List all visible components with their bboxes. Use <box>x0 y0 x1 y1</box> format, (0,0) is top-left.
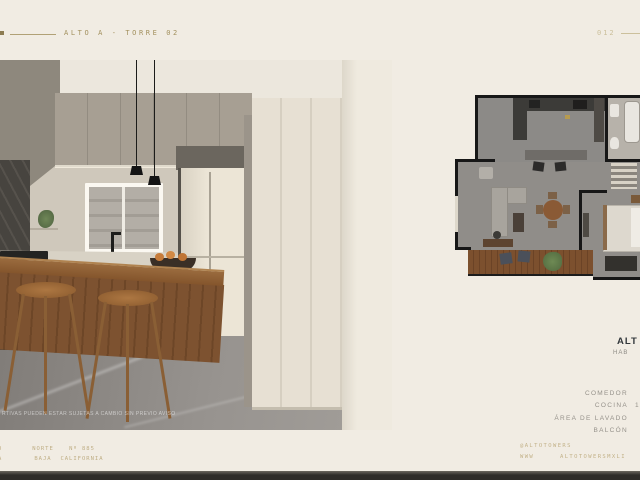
tall-wardrobe <box>252 98 342 410</box>
room-item: ÁREA DE LAVADO <box>520 413 628 425</box>
right-wall <box>342 60 392 430</box>
wall-mid-left <box>478 159 495 162</box>
cabinet-niche <box>176 146 244 170</box>
bed-footboard <box>603 205 607 250</box>
faucet-spout <box>111 232 121 235</box>
wall-bath-divider <box>605 98 608 159</box>
coffee-table <box>513 213 524 232</box>
wall-bedroom-top <box>579 190 607 193</box>
plan-subtitle: HAB <box>613 350 640 356</box>
pendant-cord <box>154 60 155 178</box>
balcony-chair <box>499 252 512 265</box>
desk-chair <box>493 231 501 239</box>
peninsula-stool <box>532 161 544 171</box>
balcony-deck <box>468 250 593 275</box>
brochure-page: ALTO A - TORRE 02 012 <box>0 0 640 480</box>
fruit <box>178 253 187 261</box>
fruit <box>155 253 164 261</box>
wall-notch <box>455 159 478 162</box>
wall-left-upper <box>475 95 478 162</box>
pendant-light-icon <box>148 176 161 185</box>
social-handle: @ALTOTOWERS <box>520 443 572 449</box>
counter-decor <box>565 115 570 119</box>
floor-plan <box>455 95 640 295</box>
peninsula-stool <box>555 161 567 171</box>
kitchen-render-photo: RTIVAS PUEDEN ESTAR SUJETAS A CAMBIO SIN… <box>0 60 392 430</box>
project-label: ALTO A - TORRE 02 <box>64 29 180 37</box>
stool-leg <box>44 296 47 414</box>
tall-unit <box>594 98 604 142</box>
nightstand <box>631 195 640 203</box>
sink <box>529 100 540 108</box>
header-edge-mark <box>0 31 4 35</box>
stool-leg <box>126 304 129 422</box>
bar-stool <box>14 282 80 430</box>
bottom-edge-bar <box>0 471 640 480</box>
wall-bottom-left <box>455 247 471 250</box>
balcony-plant-icon <box>543 252 562 271</box>
address-line: BAJA <box>27 454 59 464</box>
page-number: 012 <box>597 29 616 37</box>
balcony-chair <box>517 250 530 262</box>
sofa-chaise <box>491 187 508 237</box>
website-www: WWW <box>520 454 534 460</box>
page-number-rule <box>621 33 640 34</box>
bed-pillows <box>631 208 640 247</box>
wall-bedroom-divider <box>579 190 582 250</box>
bath-sink <box>610 104 619 117</box>
dining-chair <box>563 205 570 214</box>
dining-chair <box>548 192 557 199</box>
room-item: BALCÓN <box>520 425 628 437</box>
pendant-cord <box>136 60 137 168</box>
wall-bedroom-bottom <box>593 277 640 280</box>
toilet <box>610 137 619 149</box>
kitchen-peninsula <box>525 150 587 160</box>
address-block: Nº 885 CALIFORNIA <box>58 444 106 464</box>
balcony-rail <box>468 274 593 276</box>
address-block: DO NA <box>0 444 12 464</box>
dining-chair <box>536 205 543 214</box>
room-count: 1 <box>635 400 639 412</box>
address-block: NORTE BAJA <box>27 444 59 464</box>
bathtub <box>624 101 640 143</box>
address-line: NORTE <box>27 444 59 454</box>
room-item: COCINA <box>520 400 628 412</box>
wall-mid-right <box>605 159 640 162</box>
address-line: NA <box>0 454 12 464</box>
room-item: COMEDOR <box>520 388 628 400</box>
dining-chair <box>548 221 557 228</box>
armchair <box>479 167 493 179</box>
dining-table <box>543 200 563 220</box>
photo-disclaimer: RTIVAS PUEDEN ESTAR SUJETAS A CAMBIO SIN… <box>2 411 222 417</box>
fruit <box>166 251 175 259</box>
website-domain: ALTOTOWERSMXLI <box>560 454 640 460</box>
header-rule-line <box>10 34 56 35</box>
open-shelf <box>30 228 58 230</box>
address-line: DO <box>0 444 12 454</box>
faucet-icon <box>111 232 114 254</box>
address-line: CALIFORNIA <box>58 454 106 464</box>
pendant-light-icon <box>130 166 143 175</box>
closet <box>611 163 637 189</box>
living-window <box>455 195 458 233</box>
console-desk <box>483 239 513 247</box>
plan-title: ALT <box>617 336 640 347</box>
room-list: COMEDOR COCINA ÁREA DE LAVADO BALCÓN <box>520 388 628 438</box>
window-mullion <box>122 187 125 249</box>
address-line: Nº 885 <box>58 444 106 454</box>
stove <box>573 100 587 109</box>
kitchen-counter-return <box>513 98 527 140</box>
tv-dresser <box>583 213 589 237</box>
bedroom-rug <box>605 256 637 271</box>
bar-stool <box>96 290 162 430</box>
